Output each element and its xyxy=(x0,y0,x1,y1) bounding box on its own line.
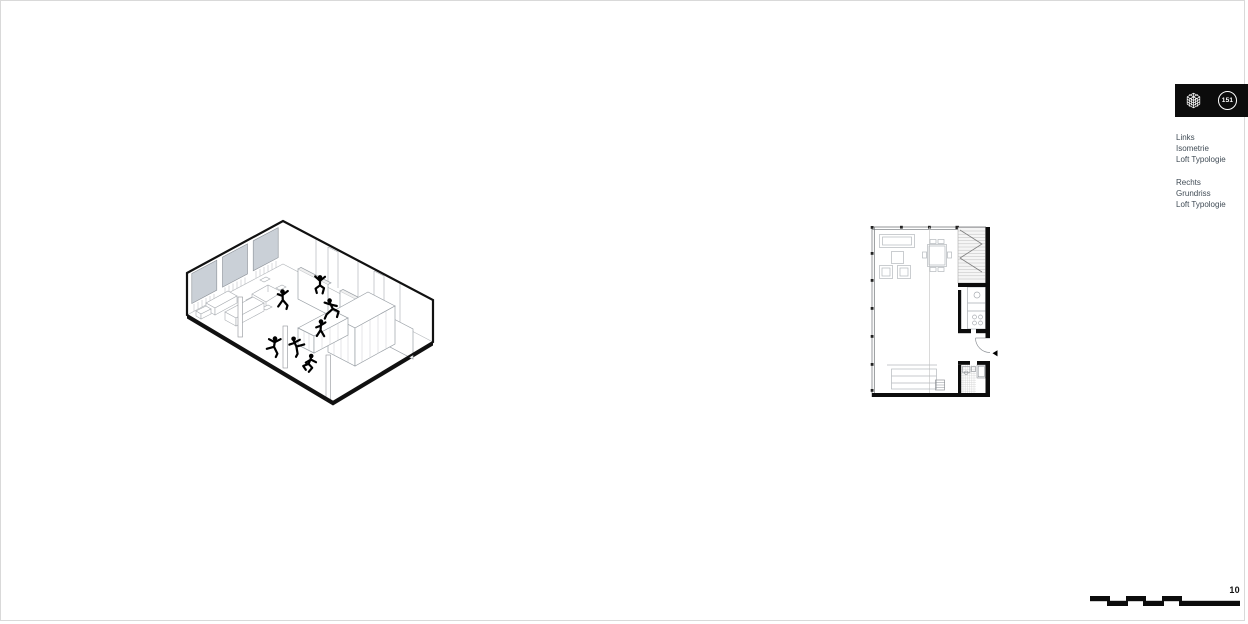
stair xyxy=(958,228,986,284)
bed xyxy=(887,365,945,390)
sofa xyxy=(880,235,915,248)
chapter-number-badge: 151 xyxy=(1218,91,1237,110)
isometric-drawing xyxy=(178,212,440,408)
coffee-table xyxy=(892,252,904,264)
caption-right-figure: Rechts Grundriss Loft Typologie xyxy=(1176,177,1248,210)
caption-line: Grundriss xyxy=(1176,188,1248,199)
cube-icon xyxy=(1183,90,1204,111)
person-silhouette xyxy=(303,354,316,372)
sink xyxy=(974,292,980,298)
entrance-arrow-icon xyxy=(993,350,998,356)
dining-table xyxy=(923,240,952,272)
armchair xyxy=(880,266,893,279)
bathroom xyxy=(961,365,985,393)
stove xyxy=(973,315,983,325)
dresser xyxy=(936,380,946,390)
armchair xyxy=(898,266,911,279)
iso-beds xyxy=(196,291,264,326)
floor-plan-drawing xyxy=(865,219,1005,405)
caption-line: Isometrie xyxy=(1176,143,1248,154)
kitchen xyxy=(968,287,986,329)
isometric-outline xyxy=(187,221,433,402)
living-furniture xyxy=(880,235,952,279)
chapter-header-bar: 151 xyxy=(1175,84,1248,117)
caption-line: Loft Typologie xyxy=(1176,199,1248,210)
caption-line: Loft Typologie xyxy=(1176,154,1248,165)
caption-line: Links xyxy=(1176,132,1248,143)
entry-door xyxy=(976,338,991,353)
caption-line: Rechts xyxy=(1176,177,1248,188)
caption-left-figure: Links Isometrie Loft Typologie xyxy=(1176,132,1248,165)
step-scale-bar xyxy=(1090,596,1240,607)
mullions xyxy=(871,226,959,392)
person-silhouette xyxy=(267,336,281,357)
page-number: 10 xyxy=(1190,585,1240,595)
